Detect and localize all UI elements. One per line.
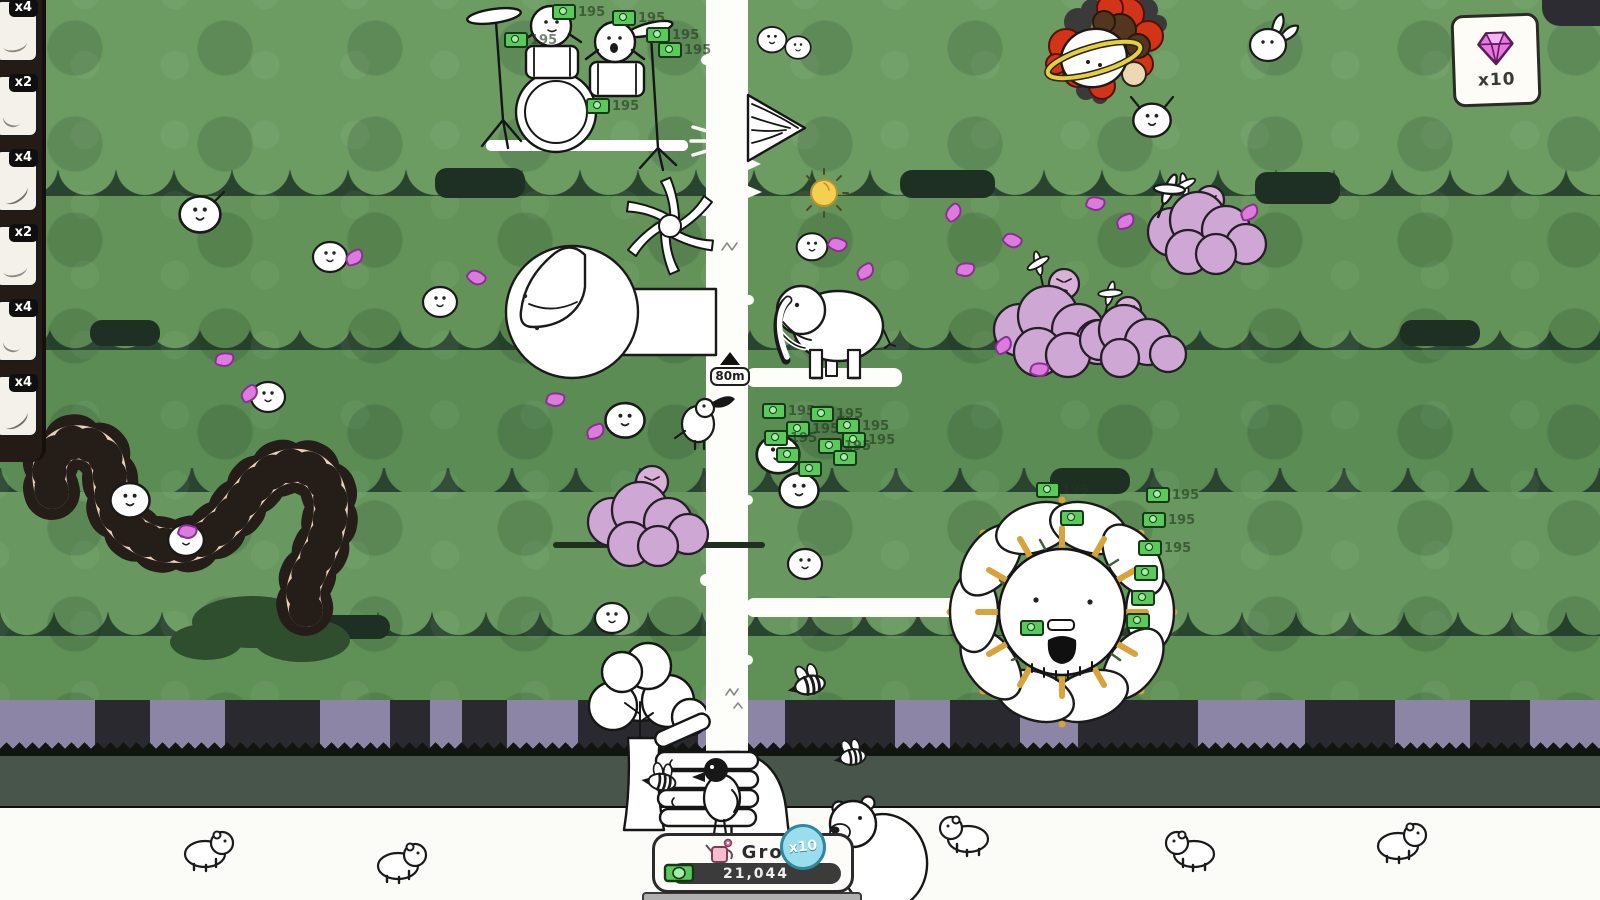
blob-creature[interactable] [423,287,457,317]
item-sketch [2,35,29,55]
multiplier-badge: x2 [9,224,38,242]
blob-creature[interactable] [605,403,644,438]
sidebar-item-card[interactable]: x4 [0,150,38,212]
money-icon [1142,512,1166,528]
sidebar-item-card[interactable]: x2 [0,225,38,287]
money-icon [504,32,528,48]
screw-cone [748,95,805,161]
money-drop[interactable] [1134,565,1158,581]
beanstalk-trunk [691,0,970,790]
bee[interactable] [831,737,867,767]
sidebar-item-card[interactable]: x4 [0,0,38,62]
gem-counter: x10 [1450,12,1541,107]
money-icon [1020,620,1044,636]
money-drop[interactable]: 195 [612,10,665,26]
next-panel-stub [642,892,862,900]
money-drop[interactable]: 195 [586,98,639,114]
goose[interactable] [506,246,716,378]
money-icon [1131,590,1155,606]
money-icon [762,403,786,419]
money-drop[interactable]: 195 [1142,512,1195,528]
bear-cub[interactable] [185,832,233,872]
multiplier-badge: x4 [9,374,38,392]
money-icon [612,10,636,26]
item-sketch [1,109,23,129]
height-label: 80m [710,367,749,386]
money-value: 195 [790,431,817,446]
money-icon [798,461,822,477]
item-sketch [2,260,29,280]
game-viewport: 1951951951951951951951951951951951951951… [0,0,1600,900]
multiplier-badge: x2 [9,74,38,92]
money-icon [663,862,695,884]
money-value: 195 [1172,488,1199,503]
money-value: 195 [684,43,711,58]
currency-amount: 21,044 [723,866,789,882]
money-drop[interactable] [1131,590,1155,606]
money-value: 195 [672,28,699,43]
sidebar-item-card[interactable]: x4 [0,300,38,362]
bear-cub[interactable] [378,844,426,884]
money-icon [776,447,800,463]
money-icon [1146,487,1170,503]
money-drop[interactable] [776,447,800,463]
money-value: 195 [530,33,557,48]
money-value: 195 [1164,541,1191,556]
money-drop[interactable]: 195 [658,42,711,58]
money-icon [1138,540,1162,556]
money-icon [586,98,610,114]
money-icon [1134,565,1158,581]
money-drop[interactable] [1020,620,1044,636]
money-drop[interactable]: 195 [504,32,557,48]
gem-count-label: x10 [1478,69,1516,90]
elephant[interactable] [777,286,895,378]
money-icon [810,406,834,422]
branch-path [746,368,902,387]
money-value: 195 [638,11,665,26]
money-drop[interactable]: 195 [552,4,605,20]
blob-creature[interactable] [595,603,629,633]
money-drop[interactable]: 195 [762,403,815,419]
sidebar-item-card[interactable]: x2 [0,75,38,137]
money-drop[interactable]: 195 [764,430,817,446]
money-drop[interactable] [798,461,822,477]
item-sketch [1,181,31,208]
bear-cub[interactable] [1378,824,1426,864]
money-icon [764,430,788,446]
saturn-creature[interactable] [1044,0,1167,104]
money-icon [658,42,682,58]
centipede-rider[interactable] [110,483,149,518]
multiplier-badge: x4 [9,0,38,17]
money-value: 195 [868,433,895,448]
bee[interactable] [783,661,827,699]
branch-path [746,598,970,617]
blob-creature[interactable] [797,233,828,260]
blob-creature[interactable] [788,549,822,579]
item-sketch [1,406,31,433]
multiplier-badge: x4 [9,299,38,317]
bear-cub[interactable] [940,817,988,857]
height-marker: 80m [704,352,756,386]
multiplier-badge: x4 [9,149,38,167]
bear-cub[interactable] [1166,832,1214,872]
money-value: 195 [612,99,639,114]
blob-creature[interactable] [313,242,347,272]
money-value: 195 [1168,513,1195,528]
money-value: 195 [1062,483,1089,498]
blob-creature[interactable] [785,36,811,59]
money-drop[interactable]: 195 [1146,487,1199,503]
money-icon [646,27,670,43]
money-icon [1060,510,1084,526]
blob-creature[interactable] [758,27,787,53]
corner-foliage-shadow [1542,0,1600,26]
money-drop[interactable]: 195 [1138,540,1191,556]
money-icon [1036,482,1060,498]
money-icon [552,4,576,20]
wreath-sun-creature[interactable] [947,493,1178,731]
octopus-creature[interactable] [623,175,717,278]
money-icon [833,450,857,466]
money-drop[interactable]: 195 [1036,482,1089,498]
money-icon [1126,613,1150,629]
sun [800,169,848,217]
blob-creature[interactable] [180,192,224,232]
up-arrow-icon [720,352,740,365]
money-drop[interactable]: 195 [646,27,699,43]
money-value: 195 [578,5,605,20]
gem-icon [1474,29,1517,68]
money-drop[interactable] [833,450,857,466]
sidebar-item-card[interactable]: x4 [0,375,38,437]
sidebar-list: x4x2x4x2x4x4 [0,0,46,462]
rabbit-creature[interactable] [1250,14,1298,61]
watering-can-icon [704,838,734,866]
item-sketch [1,334,23,354]
blob-creature[interactable] [1131,97,1173,137]
money-drop[interactable] [1060,510,1084,526]
blob-creature[interactable] [779,473,818,508]
money-drop[interactable] [1126,613,1150,629]
